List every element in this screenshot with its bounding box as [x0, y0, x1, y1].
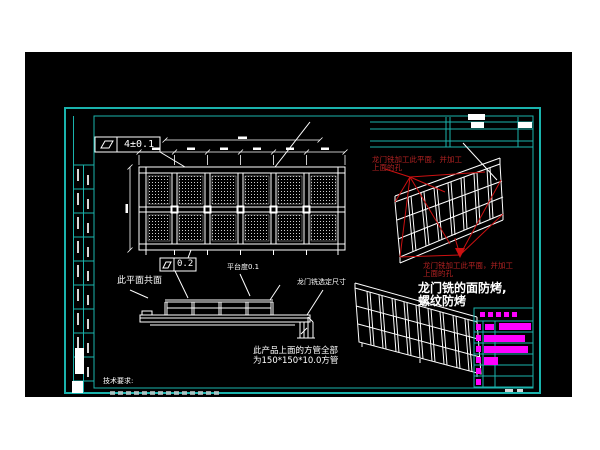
flatness-icon — [101, 141, 113, 148]
fcf-top-value: 4±0.1 — [124, 139, 154, 150]
red-machining-note-top: 龙门铣加工此平面，并加工 上面的孔 — [372, 156, 462, 173]
isometric-view-top — [395, 158, 503, 263]
platform-flatness-note: 平台度0.1 — [227, 264, 259, 272]
antibake-note: 龙门铣的面防烤, 螺纹防烤 — [418, 282, 507, 308]
tube-note-line2: 为150*150*10.0方管 — [253, 356, 338, 366]
tube-note-line1: 此产品上面的方管全部 — [253, 346, 338, 356]
title-block-highlights — [476, 312, 531, 385]
coplanar-note: 此平面共面 — [117, 277, 162, 287]
plan-view-grating-panels — [148, 176, 336, 241]
side-elevation-view — [140, 274, 323, 338]
screenshot-page: 4±0.1 0.2 此平面共面 平台度0.1 龙门铣选定尺寸 龙门铣加工此平面，… — [0, 0, 600, 450]
tech-requirements-body-blur — [110, 391, 220, 395]
title-block-bottom-marks — [505, 389, 523, 392]
red-machining-note-bottom: 龙门铣加工此平面，并加工 上面的孔 — [423, 262, 513, 279]
antibake-line2: 螺纹防烤 — [418, 295, 507, 308]
top-header-table — [370, 117, 533, 147]
square-tube-note: 此产品上面的方管全部 为150*150*10.0方管 — [253, 346, 338, 366]
gantry-mill-size-note: 龙门铣选定尺寸 — [297, 279, 346, 287]
red-note-bottom-line2: 上面的孔 — [423, 270, 513, 278]
red-note-top-line2: 上面的孔 — [372, 164, 462, 172]
cad-canvas: 4±0.1 0.2 此平面共面 平台度0.1 龙门铣选定尺寸 龙门铣加工此平面，… — [25, 52, 572, 397]
fcf-mid-value: 0.2 — [177, 260, 193, 270]
flatness-icon — [163, 262, 171, 268]
flatness-fcf-mid — [130, 250, 196, 298]
tech-requirements-title: 技术要求: — [103, 378, 133, 386]
